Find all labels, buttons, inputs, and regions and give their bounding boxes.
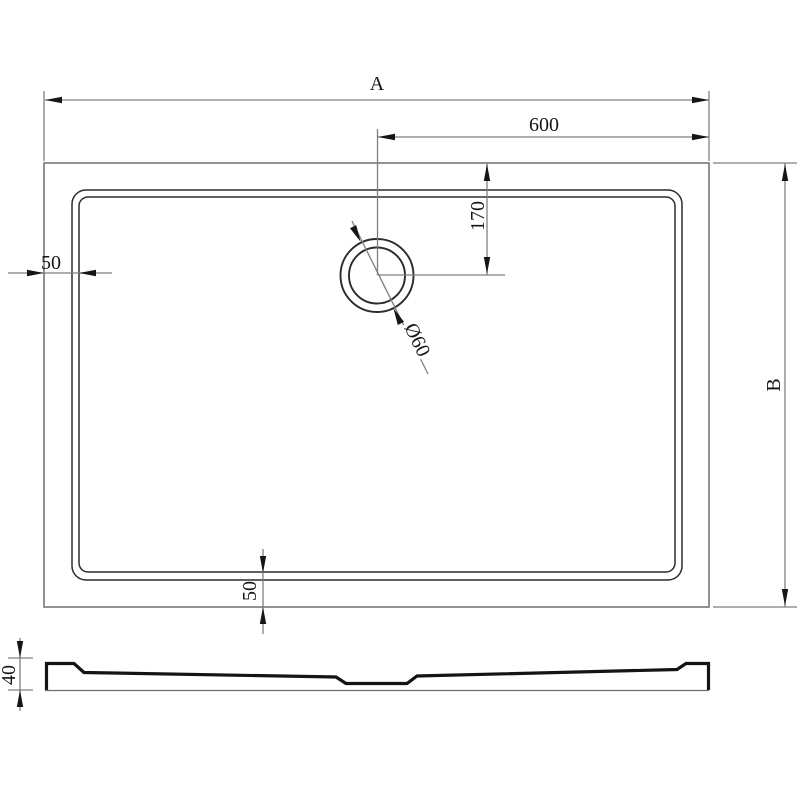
arrow-50-bottom-b [260, 607, 266, 624]
dim-label-drain-offset-y: 170 [468, 201, 488, 231]
arrow-40-bottom [17, 690, 23, 707]
arrow-b-top [782, 164, 788, 181]
arrow-600-right [692, 134, 709, 140]
arrow-170-top [484, 164, 490, 181]
arrow-170-bottom [484, 257, 490, 274]
side-profile-view [8, 638, 709, 711]
arrow-a-left [45, 97, 62, 103]
dim-label-overall-width: A [370, 74, 384, 94]
top-view [8, 91, 797, 634]
arrow-40-top [17, 641, 23, 658]
dim-label-rim-left: 50 [41, 253, 61, 273]
arrow-600-left [378, 134, 395, 140]
arrow-50-left-b [79, 270, 96, 276]
dim-label-overall-height: B [764, 378, 784, 391]
tray-outer-edge [44, 163, 709, 607]
dim-label-rim-bottom: 50 [240, 581, 260, 601]
arrow-b-bottom [782, 589, 788, 606]
arrow-50-bottom-a [260, 556, 266, 573]
arrow-a-right [692, 97, 709, 103]
arrow-drain-upper [350, 225, 361, 242]
arrow-drain-lower [393, 308, 404, 325]
drawing-sheet: A 600 170 Ø60 50 B 50 40 [0, 0, 800, 800]
drawing-canvas [0, 0, 800, 800]
dim-label-drain-offset-x: 600 [529, 115, 559, 135]
profile-outline [47, 664, 709, 691]
dim-label-profile-height: 40 [0, 665, 19, 685]
